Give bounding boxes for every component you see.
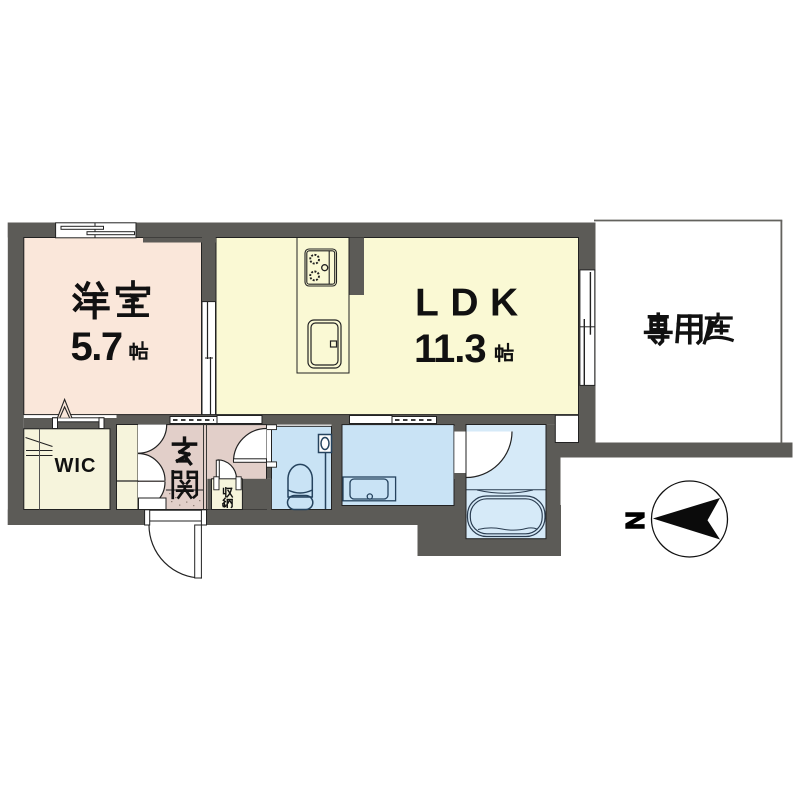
svg-text:N: N [620,511,650,530]
svg-text:LDK: LDK [415,282,530,325]
svg-text:WIC: WIC [55,455,97,477]
svg-text:11.3: 11.3 [414,327,486,371]
svg-text:5.7: 5.7 [71,325,122,369]
